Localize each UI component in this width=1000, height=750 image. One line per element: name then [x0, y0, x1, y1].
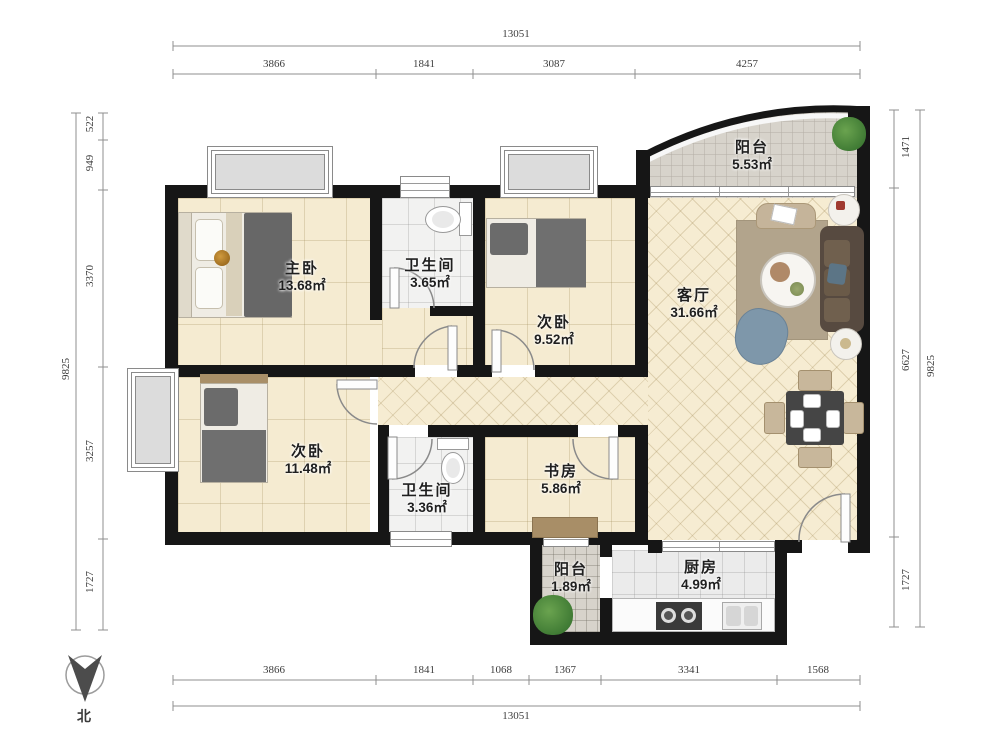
- dim-left-seg: 1727: [84, 557, 96, 607]
- dim-bottom-total: 13051: [491, 710, 541, 722]
- dim-left-seg: 3257: [84, 426, 96, 476]
- dim-top-seg: 1841: [399, 58, 449, 70]
- floor-plan: 主卧13.68㎡ 卫生间3.65㎡ 次卧9.52㎡ 客厅31.66㎡ 阳台5.5…: [0, 0, 1000, 750]
- dim-left-total: 9825: [60, 344, 72, 394]
- dim-right-total: 9825: [925, 341, 937, 391]
- dim-bottom-seg: 3341: [664, 664, 714, 676]
- dim-bottom-seg: 1367: [540, 664, 590, 676]
- dim-bottom-seg: 3866: [249, 664, 299, 676]
- dim-bottom-seg: 1841: [399, 664, 449, 676]
- dim-right-seg: 6627: [900, 335, 912, 385]
- dimension-lines: [0, 0, 1000, 750]
- dim-top-seg: 3866: [249, 58, 299, 70]
- north-compass-icon: [55, 645, 115, 710]
- dim-top-seg: 3087: [529, 58, 579, 70]
- dim-top-total: 13051: [491, 28, 541, 40]
- dim-bottom-seg: 1568: [793, 664, 843, 676]
- dim-left-seg: 3370: [84, 251, 96, 301]
- north-label: 北: [77, 706, 91, 726]
- dim-left-seg: 949: [84, 138, 96, 188]
- dim-top-seg: 4257: [722, 58, 772, 70]
- dim-right-seg: 1727: [900, 555, 912, 605]
- dim-bottom-seg: 1068: [476, 664, 526, 676]
- dim-right-seg: 1471: [900, 122, 912, 172]
